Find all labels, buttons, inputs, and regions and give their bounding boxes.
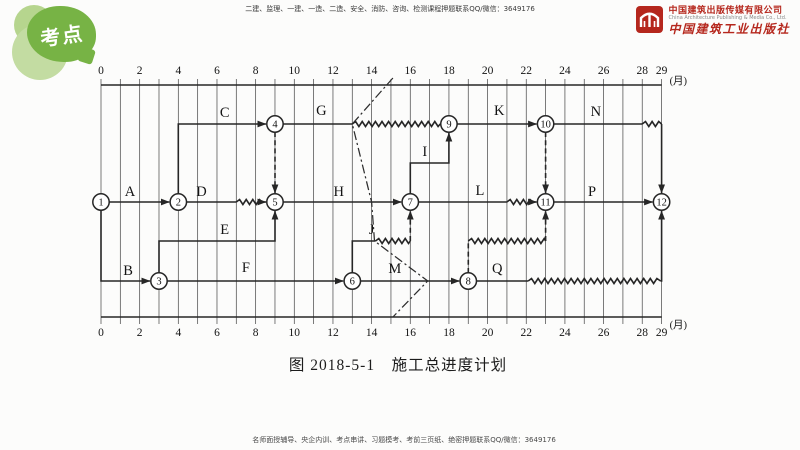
activity-N: N [554,104,662,193]
activity-M: M [360,261,459,281]
activity-label-A: A [125,184,136,200]
activity-label-K: K [494,103,505,119]
bottom-tick-18: 18 [443,327,455,339]
activity-Q: Q [476,211,661,284]
node-3: 3 [151,273,167,289]
activity-label-D: D [196,184,206,200]
node-number-10: 10 [540,120,551,131]
bottom-tick-2: 2 [137,327,143,339]
top-tick-20: 20 [482,65,494,77]
activity-J: J [352,211,410,273]
node-2: 2 [170,194,186,210]
activity-C: C [178,105,266,194]
activity-D-seg1 [236,200,262,205]
top-tick-10: 10 [289,65,301,77]
top-tick-2: 2 [137,65,143,77]
activity-D: D [186,184,266,205]
activity-Q-seg1 [528,279,660,284]
activity-L-seg1 [507,200,533,205]
schedule-network-diagram: 0022446688101012121414161618182020222224… [0,0,800,450]
node-number-8: 8 [466,277,471,288]
top-tick-16: 16 [405,65,417,77]
node-number-9: 9 [446,120,451,131]
node-number-7: 7 [408,198,413,209]
bottom-tick-16: 16 [405,327,417,339]
top-tick-26: 26 [598,65,610,77]
node-9: 9 [441,116,457,132]
activity-Q-seg2 [661,211,662,281]
bottom-tick-12: 12 [327,327,339,339]
bottom-tick-24: 24 [559,327,571,339]
bottom-unit-label: (月) [670,319,688,331]
activity-H: H [283,184,401,202]
activity-L: L [418,183,536,205]
top-tick-6: 6 [214,65,220,77]
top-tick-28: 28 [636,65,648,77]
activity-B: B [101,210,150,281]
bottom-tick-8: 8 [253,327,259,339]
top-tick-29: 29 [656,65,668,77]
footer-promo-text: 名师面授辅导、央企内训、考点串讲、习题模考、考前三页纸、绝密押题联系QQ/微信：… [0,435,800,445]
top-tick-4: 4 [175,65,181,77]
activity-label-F: F [242,260,250,276]
bottom-tick-29: 29 [656,327,668,339]
bottom-tick-28: 28 [636,327,648,339]
node-12: 12 [653,194,669,210]
bottom-tick-10: 10 [289,327,301,339]
top-tick-14: 14 [366,65,378,77]
activity-F: F [167,260,343,281]
activity-K: K [457,103,537,124]
activity-label-G: G [316,103,327,119]
node-11: 11 [537,194,553,210]
node-number-3: 3 [156,277,161,288]
activity-label-L: L [475,183,484,199]
node-number-1: 1 [98,198,103,209]
node-10: 10 [537,116,553,132]
node-number-11: 11 [541,198,551,209]
activity-label-M: M [388,261,401,277]
activity-G: G [283,103,440,127]
node-5: 5 [267,194,283,210]
bottom-tick-14: 14 [366,327,378,339]
activity-label-H: H [334,184,345,200]
activity-label-C: C [220,105,230,121]
activity-C-seg0 [178,124,266,194]
bottom-tick-0: 0 [98,327,104,339]
top-tick-18: 18 [443,65,455,77]
activity-N-seg1 [642,122,661,127]
activity-A: A [109,184,169,202]
bottom-tick-4: 4 [175,327,181,339]
activity-J-seg1 [376,239,411,244]
figure-caption: 图 2018-5-1 施工总进度计划 [0,353,796,375]
top-tick-24: 24 [559,65,571,77]
top-tick-12: 12 [327,65,339,77]
top-tick-8: 8 [253,65,259,77]
activity-P: P [554,184,653,202]
bottom-tick-6: 6 [214,327,220,339]
bottom-tick-26: 26 [598,327,610,339]
activity-label-B: B [123,263,133,279]
top-tick-22: 22 [521,65,533,77]
node-number-4: 4 [272,120,278,131]
activity-label-E: E [220,222,229,238]
activity-label-I: I [422,144,427,160]
node-number-2: 2 [176,198,181,209]
node-6: 6 [344,273,360,289]
activity-label-N: N [591,104,602,120]
activity-label-P: P [588,184,596,200]
top-tick-0: 0 [98,65,104,77]
node-4: 4 [267,116,283,132]
activity-G-seg1 [352,122,440,127]
top-unit-label: (月) [670,75,688,87]
activity-label-Q: Q [492,261,503,277]
node-number-12: 12 [656,198,667,209]
bottom-tick-22: 22 [521,327,533,339]
node-7: 7 [402,194,418,210]
node-number-5: 5 [272,198,277,209]
node-8: 8 [460,273,476,289]
bottom-tick-20: 20 [482,327,494,339]
page: 考点 二建、监理、一建、一造、二造、安全、消防、咨询、检测课程押题联系QQ/微信… [0,0,800,450]
activity-J-seg0 [352,241,375,273]
node-number-6: 6 [350,277,355,288]
node-1: 1 [93,194,109,210]
